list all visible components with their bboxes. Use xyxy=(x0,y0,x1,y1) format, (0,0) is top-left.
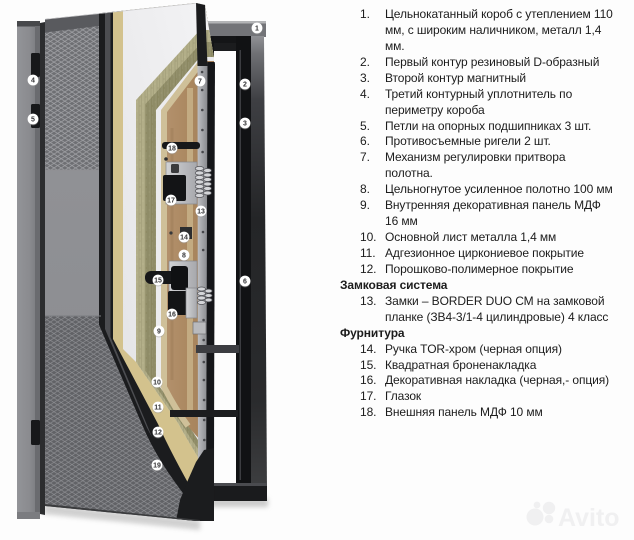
svg-text:14: 14 xyxy=(180,235,188,242)
svg-text:16: 16 xyxy=(168,312,176,319)
svg-text:7: 7 xyxy=(198,79,202,86)
svg-text:11: 11 xyxy=(154,405,162,412)
svg-text:12: 12 xyxy=(154,430,162,437)
svg-text:19: 19 xyxy=(153,463,161,470)
svg-text:Avito: Avito xyxy=(558,504,620,532)
svg-text:5: 5 xyxy=(31,117,35,124)
svg-text:3: 3 xyxy=(243,121,247,128)
svg-text:10: 10 xyxy=(153,380,161,387)
svg-text:18: 18 xyxy=(168,146,176,153)
svg-text:15: 15 xyxy=(154,278,162,285)
svg-text:13: 13 xyxy=(197,209,205,216)
svg-text:17: 17 xyxy=(167,198,175,205)
svg-text:8: 8 xyxy=(182,253,186,260)
svg-text:1: 1 xyxy=(255,26,259,33)
svg-text:2: 2 xyxy=(243,82,247,89)
svg-text:6: 6 xyxy=(243,279,247,286)
svg-text:9: 9 xyxy=(157,329,161,336)
svg-text:4: 4 xyxy=(31,78,35,85)
